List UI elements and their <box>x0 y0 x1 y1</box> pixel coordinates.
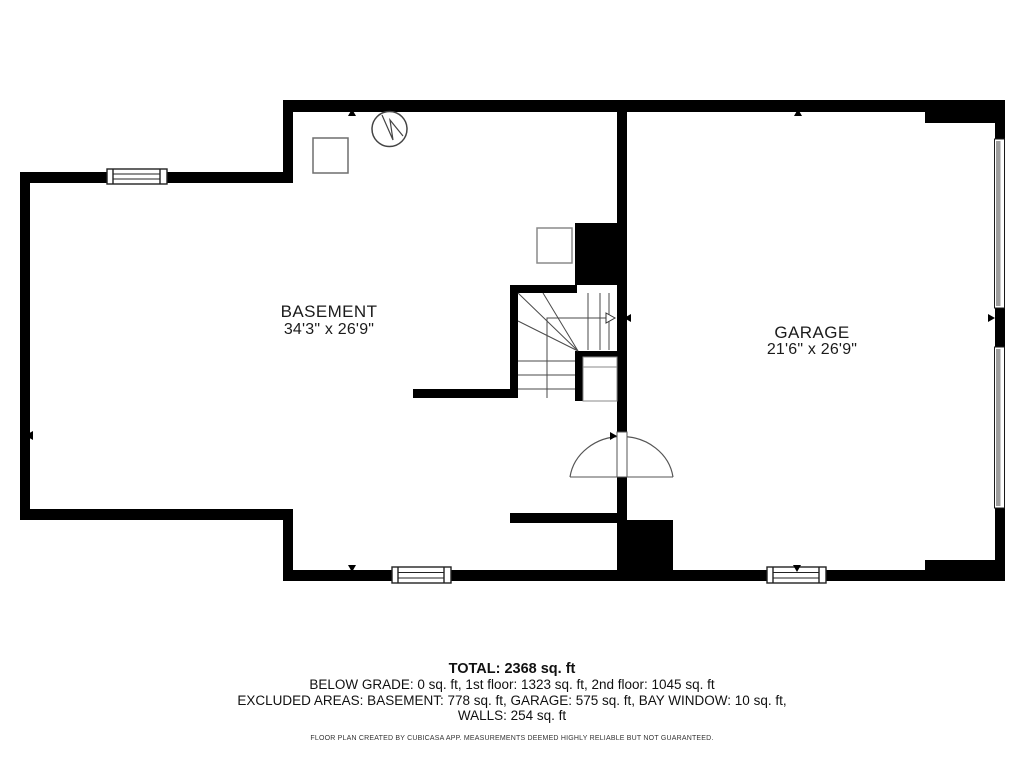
wall-top <box>283 100 1005 112</box>
excluded-areas-text: EXCLUDED AREAS: BASEMENT: 778 sq. ft, GA… <box>0 693 1024 709</box>
basement-right-arrow-icon <box>610 432 617 440</box>
stair-direction-arrow-icon <box>606 313 615 323</box>
walls-area-text: WALLS: 254 sq. ft <box>0 708 1024 724</box>
wall-left-connector <box>283 100 293 183</box>
wall-stair-left <box>510 285 518 398</box>
wall-right-mid <box>995 307 1005 348</box>
wall-bottom-right-notch <box>925 560 1005 581</box>
door-swing-icon <box>570 432 673 477</box>
wall-top-right-notch <box>925 100 1005 123</box>
floor-plan-page: BASEMENT 34'3" x 26'9" GARAGE 21'6" x 26… <box>0 0 1024 768</box>
basement-room-dimensions: 34'3" x 26'9" <box>284 321 374 339</box>
appliance-square-icon-1 <box>313 138 348 173</box>
walls <box>20 100 1005 581</box>
floor-plan-drawing <box>0 0 1024 768</box>
wall-stair-black-block <box>575 223 617 285</box>
wall-left-section-bottom <box>20 509 293 520</box>
wall-right-bottom <box>995 507 1005 581</box>
under-stair-closet <box>583 357 617 401</box>
garage-room-label: GARAGE <box>774 323 849 343</box>
wall-under-stair <box>413 389 518 398</box>
garage-door-icon-lower <box>995 347 1005 508</box>
wall-door-stub <box>510 513 627 523</box>
wall-center-upper <box>617 100 627 432</box>
below-grade-text: BELOW GRADE: 0 sq. ft, 1st floor: 1323 s… <box>0 677 1024 693</box>
area-summary: TOTAL: 2368 sq. ft BELOW GRADE: 0 sq. ft… <box>0 661 1024 743</box>
garage-right-arrow-icon <box>988 314 995 322</box>
window-icon-top-left <box>107 169 167 184</box>
window-icon-basement-bottom <box>392 567 451 583</box>
basement-room-label: BASEMENT <box>281 302 378 322</box>
appliance-square-icon-2 <box>537 228 572 263</box>
wall-center-bottom-block <box>617 520 673 581</box>
total-area-text: TOTAL: 2368 sq. ft <box>0 661 1024 677</box>
wall-stair-top <box>510 285 577 293</box>
garage-door-icon-upper <box>995 139 1005 308</box>
garage-room-dimensions: 21'6" x 26'9" <box>767 341 857 359</box>
wall-right-top <box>995 100 1005 141</box>
wall-closet-left <box>575 351 583 401</box>
water-heater-circle-icon <box>372 112 407 147</box>
wall-left <box>20 172 30 520</box>
disclaimer-text: FLOOR PLAN CREATED BY CUBICASA APP. MEAS… <box>0 734 1024 743</box>
